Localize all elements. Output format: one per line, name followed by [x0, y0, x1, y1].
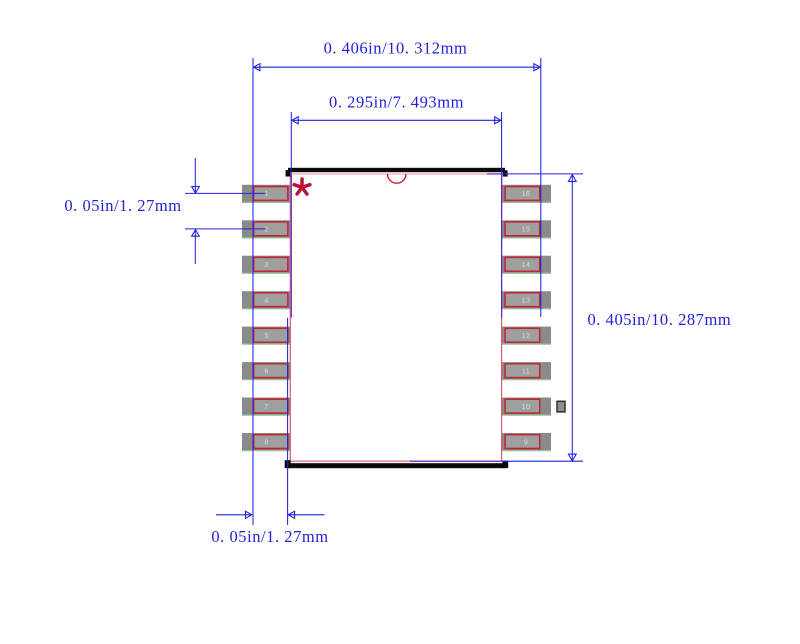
svg-text:0. 05in/1. 27mm: 0. 05in/1. 27mm [64, 196, 181, 215]
svg-text:13: 13 [522, 296, 531, 305]
svg-text:15: 15 [522, 225, 531, 234]
svg-text:3: 3 [264, 260, 268, 269]
svg-text:5: 5 [264, 331, 268, 340]
svg-text:10: 10 [522, 402, 531, 411]
svg-text:4: 4 [264, 296, 268, 305]
svg-text:16: 16 [522, 189, 531, 198]
svg-text:12: 12 [522, 331, 531, 340]
svg-text:7: 7 [264, 402, 268, 411]
svg-text:14: 14 [522, 260, 531, 269]
svg-text:9: 9 [524, 437, 528, 446]
svg-text:0. 405in/10. 287mm: 0. 405in/10. 287mm [588, 310, 732, 329]
svg-text:0. 05in/1. 27mm: 0. 05in/1. 27mm [211, 527, 328, 546]
svg-text:6: 6 [264, 366, 268, 375]
svg-text:0. 295in/7. 493mm: 0. 295in/7. 493mm [329, 93, 464, 112]
svg-text:8: 8 [264, 437, 268, 446]
svg-text:11: 11 [522, 366, 530, 375]
svg-text:0. 406in/10. 312mm: 0. 406in/10. 312mm [324, 39, 468, 58]
